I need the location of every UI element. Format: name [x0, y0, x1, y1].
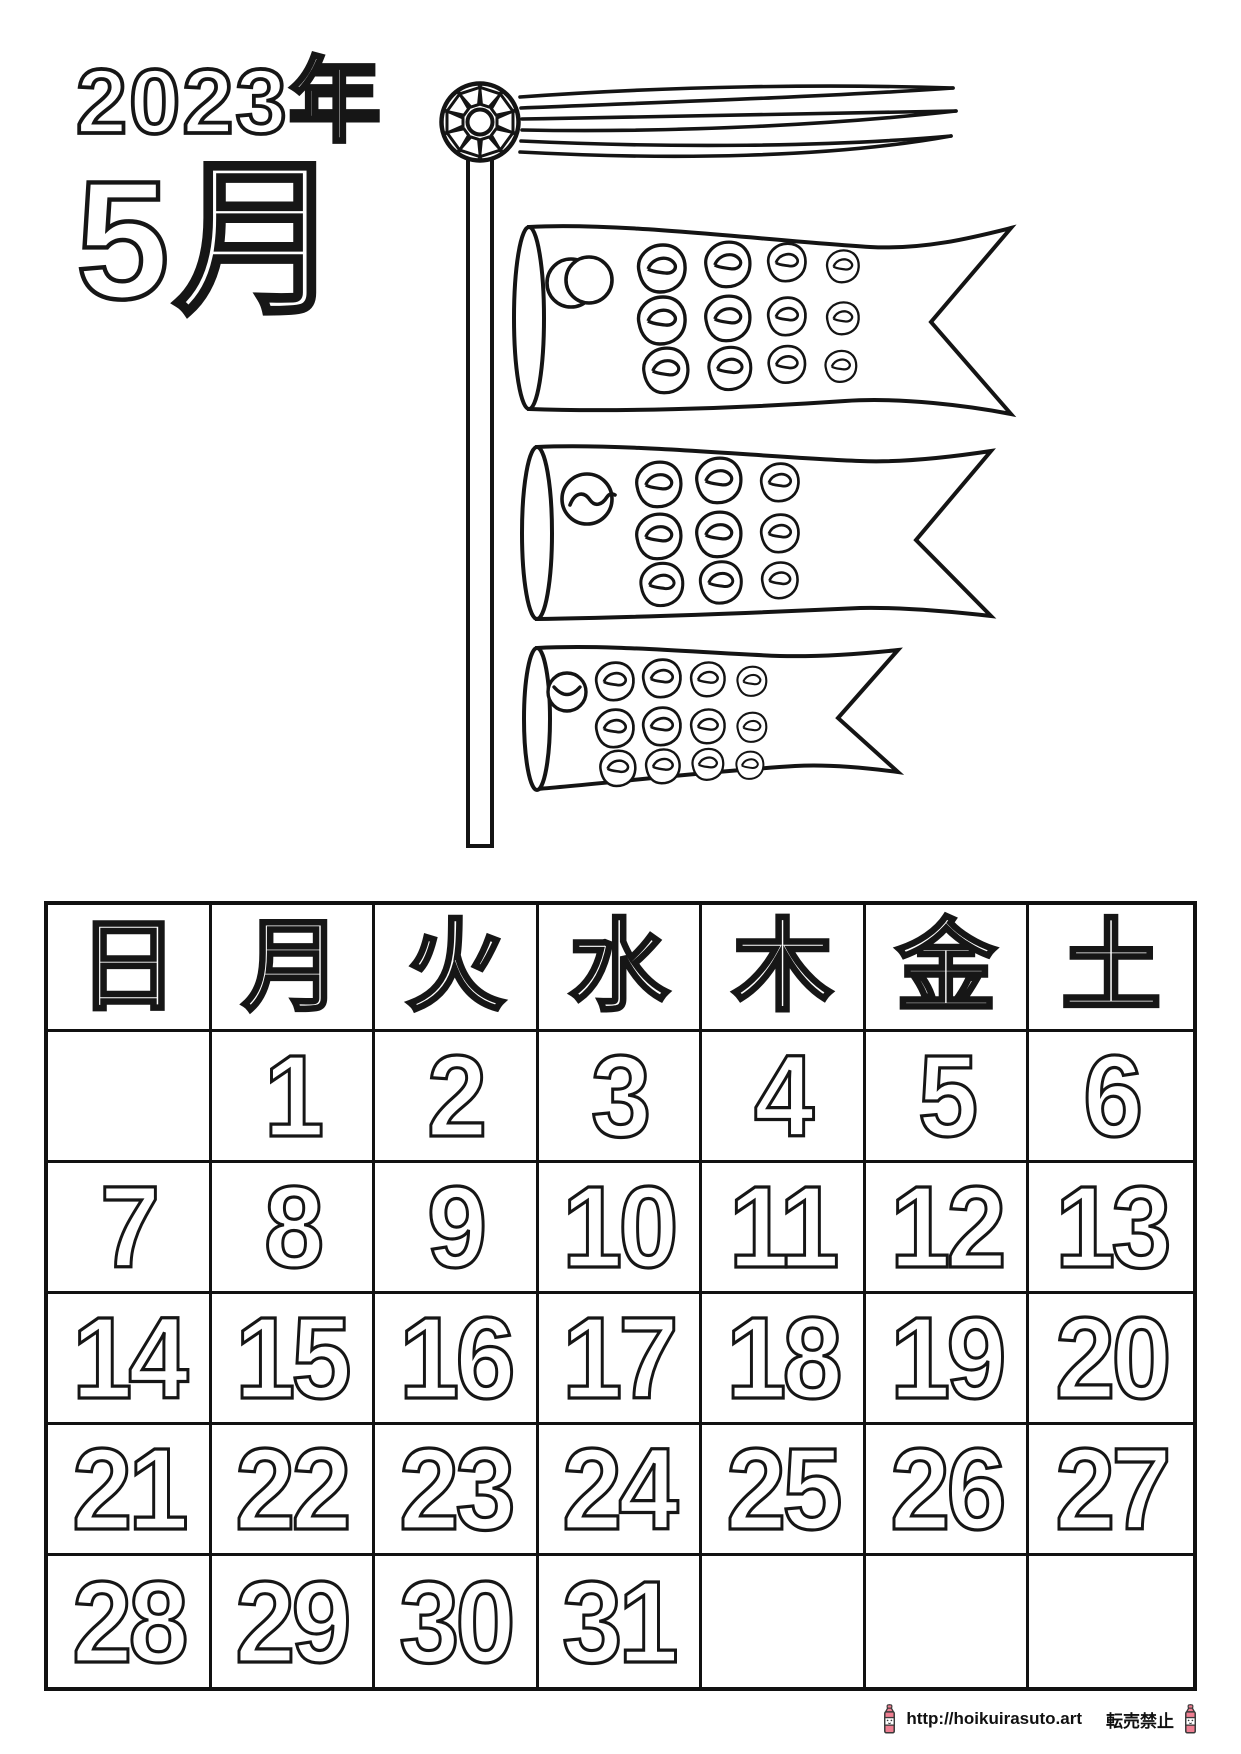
calendar-cell: 3 [539, 1032, 703, 1163]
carp-large-eye-icon [547, 257, 612, 307]
weekday-label: 金 [896, 917, 996, 1017]
scale-icon [768, 244, 805, 282]
date-number: 17 [563, 1300, 676, 1416]
date-number: 14 [72, 1300, 185, 1416]
calendar-cell: 10 [539, 1163, 703, 1294]
weekday-header-fri: 金 [866, 905, 1030, 1032]
weekday-header-thu: 木 [702, 905, 866, 1032]
scale-icon [639, 245, 686, 292]
scale-icon [827, 302, 859, 334]
calendar-grid: 日 月 火 水 木 金 土 1 2 3 4 5 6 7 8 9 10 11 12… [44, 901, 1197, 1691]
date-number: 11 [729, 1169, 836, 1285]
footer-resale-notice: 転売禁止 [1106, 1707, 1174, 1732]
calendar-cell: 24 [539, 1425, 703, 1556]
date-number: 12 [890, 1169, 1003, 1285]
calendar-cell: 12 [866, 1163, 1030, 1294]
streamers [520, 86, 956, 156]
crayon-icon [881, 1703, 898, 1735]
date-number: 15 [236, 1300, 349, 1416]
weekday-label: 日 [78, 917, 178, 1017]
date-number: 25 [726, 1431, 839, 1547]
calendar-cell: 29 [212, 1556, 376, 1687]
date-number: 29 [236, 1564, 349, 1680]
scale-icon [697, 458, 741, 503]
scale-icon [706, 296, 750, 341]
scale-icon [600, 751, 635, 786]
calendar-cell: 18 [702, 1294, 866, 1425]
scale-icon [768, 298, 805, 336]
calendar-cell: 21 [48, 1425, 212, 1556]
date-number: 19 [890, 1300, 1003, 1416]
calendar-cell: 8 [212, 1163, 376, 1294]
date-number: 5 [918, 1038, 974, 1154]
calendar-cell: 27 [1029, 1425, 1193, 1556]
calendar-cell: 22 [212, 1425, 376, 1556]
date-number: 3 [591, 1038, 647, 1154]
scale-icon [637, 462, 681, 507]
calendar-cell: 1 [212, 1032, 376, 1163]
calendar-cell [48, 1032, 212, 1163]
calendar-cell: 14 [48, 1294, 212, 1425]
scale-icon [643, 708, 680, 746]
scale-icon [697, 512, 741, 557]
crayon-icon [1182, 1703, 1199, 1735]
date-number: 8 [264, 1169, 320, 1285]
scale-icon [691, 709, 725, 743]
carp-medium [522, 446, 991, 619]
scale-icon [700, 562, 741, 603]
calendar-cell: 19 [866, 1294, 1030, 1425]
coloring-calendar-page: 2023年 5月 [0, 0, 1241, 1754]
calendar-cell [866, 1556, 1030, 1687]
weekday-label: 土 [1061, 917, 1161, 1017]
carp-medium-mouth [522, 447, 552, 619]
yaguruma-wheel-icon [442, 84, 519, 161]
calendar-cell: 9 [375, 1163, 539, 1294]
scale-icon [761, 464, 798, 502]
calendar-cell: 30 [375, 1556, 539, 1687]
scale-icon [644, 348, 688, 393]
calendar-cell [702, 1556, 866, 1687]
carp-medium-eye-icon [562, 474, 615, 524]
carp-medium-scales [637, 458, 799, 605]
date-number: 23 [399, 1431, 512, 1547]
date-number: 30 [399, 1564, 512, 1680]
footer-credit: http://hoikuirasuto.art 転売禁止 [881, 1701, 1199, 1737]
date-number: 31 [563, 1564, 676, 1680]
calendar-cell: 28 [48, 1556, 212, 1687]
calendar-cell: 13 [1029, 1163, 1193, 1294]
weekday-label: 木 [733, 917, 833, 1017]
scale-icon [827, 250, 859, 282]
calendar-cell: 25 [702, 1425, 866, 1556]
date-number: 13 [1055, 1169, 1168, 1285]
date-number: 20 [1055, 1300, 1168, 1416]
weekday-header-sun: 日 [48, 905, 212, 1032]
carp-small [524, 647, 898, 790]
scale-icon [643, 660, 680, 698]
weekday-header-wed: 水 [539, 905, 703, 1032]
scale-icon [737, 667, 766, 696]
carp-small-mouth [524, 648, 550, 790]
date-number: 21 [72, 1431, 185, 1547]
date-number: 4 [754, 1038, 810, 1154]
calendar-cell: 20 [1029, 1294, 1193, 1425]
date-number: 18 [726, 1300, 839, 1416]
calendar-cell: 15 [212, 1294, 376, 1425]
scale-icon [693, 749, 724, 780]
scale-icon [761, 515, 798, 553]
weekday-label: 火 [405, 917, 505, 1017]
calendar-cell: 23 [375, 1425, 539, 1556]
scale-icon [637, 514, 681, 559]
scale-icon [706, 242, 750, 287]
calendar-cell [1029, 1556, 1193, 1687]
weekday-header-sat: 土 [1029, 905, 1193, 1032]
flagpole [468, 152, 492, 846]
date-number: 22 [236, 1431, 349, 1547]
scale-icon [762, 563, 797, 599]
date-number: 7 [100, 1169, 156, 1285]
calendar-cell: 16 [375, 1294, 539, 1425]
weekday-header-mon: 月 [212, 905, 376, 1032]
calendar-cell: 31 [539, 1556, 703, 1687]
date-number: 2 [427, 1038, 483, 1154]
weekday-header-tue: 火 [375, 905, 539, 1032]
scale-icon [736, 752, 763, 779]
date-number: 28 [72, 1564, 185, 1680]
scale-icon [826, 351, 857, 382]
calendar-cell: 5 [866, 1032, 1030, 1163]
calendar-cell: 6 [1029, 1032, 1193, 1163]
calendar-cell: 7 [48, 1163, 212, 1294]
date-number: 27 [1055, 1431, 1168, 1547]
date-number: 1 [264, 1038, 320, 1154]
scale-icon [691, 662, 725, 696]
scale-icon [769, 346, 805, 383]
scale-icon [709, 347, 751, 389]
footer-url: http://hoikuirasuto.art [906, 1709, 1082, 1729]
date-number: 6 [1083, 1038, 1139, 1154]
carp-large [514, 226, 1011, 414]
date-number: 24 [563, 1431, 676, 1547]
carp-large-mouth [514, 227, 544, 409]
scale-icon [646, 749, 680, 783]
date-number: 26 [890, 1431, 1003, 1547]
calendar-cell: 17 [539, 1294, 703, 1425]
scale-icon [737, 713, 766, 742]
weekday-label: 水 [569, 917, 669, 1017]
scale-icon [596, 710, 633, 748]
calendar-cell: 26 [866, 1425, 1030, 1556]
calendar-cell: 2 [375, 1032, 539, 1163]
date-number: 10 [563, 1169, 676, 1285]
carp-small-eye-icon [548, 673, 586, 711]
weekday-label: 月 [242, 917, 342, 1017]
date-number: 9 [427, 1169, 483, 1285]
scale-icon [639, 297, 686, 344]
date-number: 16 [399, 1300, 512, 1416]
calendar-cell: 4 [702, 1032, 866, 1163]
scale-icon [596, 663, 633, 701]
calendar-cell: 11 [702, 1163, 866, 1294]
scale-icon [641, 563, 683, 605]
